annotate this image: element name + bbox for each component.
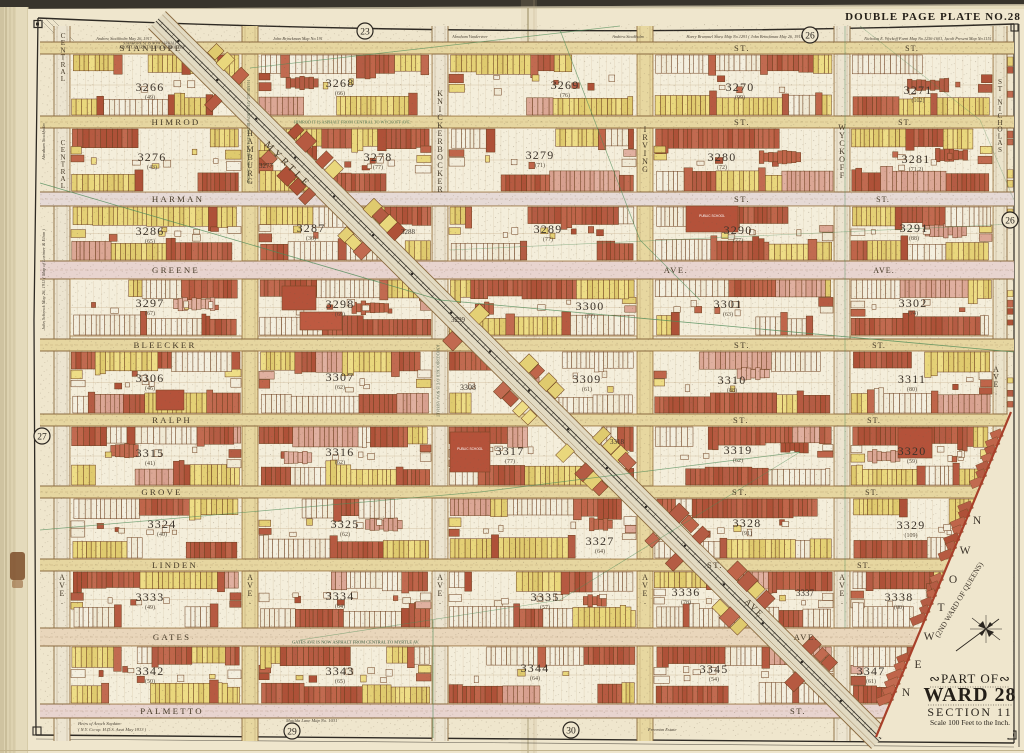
svg-text:(62): (62)	[733, 457, 743, 464]
svg-text:John Brinckman Map No.191: John Brinckman Map No.191	[273, 36, 323, 41]
svg-text:(65): (65)	[335, 678, 345, 685]
svg-text:.: .	[61, 597, 63, 606]
svg-text:3343: 3343	[326, 664, 355, 678]
svg-text:PALMETTO: PALMETTO	[140, 706, 204, 716]
svg-text:(41): (41)	[145, 460, 155, 467]
svg-text:GATES AVE IS NOW ASPHALT FROM: GATES AVE IS NOW ASPHALT FROM CENTRAL TO…	[292, 640, 419, 645]
svg-text:ST.: ST.	[734, 43, 750, 53]
svg-text:3336: 3336	[672, 585, 701, 599]
svg-text:(62): (62)	[335, 459, 345, 466]
svg-text:(69): (69)	[335, 311, 345, 318]
svg-text:3280: 3280	[708, 150, 737, 164]
svg-text:3318: 3318	[610, 438, 625, 446]
svg-text:(88): (88)	[727, 387, 737, 394]
svg-text:.: .	[995, 388, 997, 397]
svg-text:Freeman Estate: Freeman Estate	[647, 727, 676, 732]
svg-text:ST.: ST.	[734, 117, 750, 127]
svg-text:(88): (88)	[909, 235, 919, 242]
svg-text:3345: 3345	[700, 662, 729, 676]
svg-text:E: E	[914, 659, 921, 671]
svg-text:(54): (54)	[709, 676, 719, 683]
svg-text:ST.: ST.	[734, 340, 750, 350]
svg-text:(80): (80)	[907, 386, 917, 393]
svg-text:3291: 3291	[900, 221, 929, 235]
svg-text:26: 26	[805, 31, 815, 41]
svg-text:3335: 3335	[531, 590, 560, 604]
svg-text:3327: 3327	[586, 534, 615, 548]
svg-text:.: .	[439, 597, 441, 606]
svg-text:(102): (102)	[912, 97, 925, 104]
svg-text:WARD 28: WARD 28	[923, 684, 1016, 706]
svg-text:Matilda Lane Map No. 1031: Matilda Lane Map No. 1031	[285, 718, 337, 723]
svg-text:3290: 3290	[724, 223, 753, 237]
svg-text:N: N	[902, 687, 911, 699]
svg-text:(59): (59)	[907, 458, 917, 465]
svg-text:3288: 3288	[401, 228, 416, 236]
svg-text:(76): (76)	[560, 92, 570, 99]
svg-text:3342: 3342	[136, 664, 165, 678]
svg-text:T: T	[937, 602, 944, 614]
svg-text:3306: 3306	[136, 371, 165, 385]
svg-text:(64): (64)	[595, 548, 605, 555]
svg-text:3266: 3266	[136, 80, 165, 94]
svg-text:ST.: ST.	[898, 118, 912, 127]
svg-text:(67): (67)	[145, 310, 155, 317]
svg-text:(43): (43)	[147, 164, 157, 171]
svg-text:ST.: ST.	[732, 487, 748, 497]
svg-text:(80): (80)	[894, 604, 904, 611]
svg-text:3308: 3308	[460, 383, 476, 392]
svg-text:GROVE: GROVE	[141, 487, 182, 497]
svg-text:3277: 3277	[259, 162, 274, 170]
svg-text:SECTION 11: SECTION 11	[927, 705, 1012, 719]
svg-text:HIMROD IT IS ASPHALT FROM CEN: HIMROD IT IS ASPHALT FROM CENTRAL TO WYC…	[294, 120, 411, 125]
svg-text:(77): (77)	[733, 237, 743, 244]
svg-text:3289: 3289	[534, 222, 563, 236]
svg-text:ST.: ST.	[707, 560, 723, 570]
svg-text:.: .	[644, 597, 646, 606]
svg-text:BLEECKER: BLEECKER	[133, 340, 196, 350]
svg-text:(64): (64)	[530, 675, 540, 682]
svg-text:3298: 3298	[326, 297, 355, 311]
svg-text:Heirs of Anoch Suydam: Heirs of Anoch Suydam	[77, 721, 121, 726]
svg-text:(77): (77)	[373, 164, 383, 171]
svg-text:3301: 3301	[714, 297, 743, 311]
svg-text:RALPH: RALPH	[152, 415, 192, 425]
svg-text:Andrew Stockholm: Andrew Stockholm	[611, 34, 643, 39]
svg-text:S: S	[998, 146, 1002, 154]
svg-text:3315: 3315	[136, 446, 165, 460]
svg-text:N: N	[973, 515, 982, 527]
svg-text:ST.: ST.	[872, 341, 886, 350]
svg-text:30: 30	[566, 726, 576, 736]
svg-text:3324: 3324	[148, 517, 177, 531]
svg-text:3300: 3300	[576, 299, 605, 313]
svg-text:(77): (77)	[505, 458, 515, 465]
svg-text:3281: 3281	[902, 152, 931, 166]
svg-text:(64): (64)	[335, 603, 345, 610]
svg-text:AVE.: AVE.	[664, 265, 689, 275]
svg-text:F: F	[840, 171, 845, 180]
svg-text:3317: 3317	[496, 444, 525, 458]
svg-text:G: G	[642, 165, 648, 174]
svg-text:(36): (36)	[306, 235, 316, 242]
svg-text:(72): (72)	[717, 164, 727, 171]
svg-text:3309: 3309	[573, 372, 602, 386]
svg-text:GATES: GATES	[153, 632, 191, 642]
svg-text:Abraham Vanderveer: Abraham Vanderveer	[451, 34, 488, 39]
svg-text:.: .	[249, 597, 251, 606]
svg-text:(63): (63)	[723, 311, 733, 318]
svg-text:26: 26	[1005, 216, 1015, 226]
svg-text:3302: 3302	[899, 296, 928, 310]
svg-text:HAMBURG AVE IS NOW BEING REGUL: HAMBURG AVE IS NOW BEING REGULATED AND G…	[246, 80, 250, 184]
svg-text:ST.: ST.	[867, 416, 881, 425]
svg-text:AVE.: AVE.	[873, 266, 894, 275]
svg-text:(77): (77)	[543, 236, 553, 243]
svg-text:3337: 3337	[796, 588, 815, 598]
svg-text:(49): (49)	[145, 94, 155, 101]
svg-text:L: L	[61, 75, 65, 83]
svg-text:Scale 100 Feet to the Inch.: Scale 100 Feet to the Inch.	[930, 718, 1010, 727]
svg-text:3333: 3333	[136, 590, 165, 604]
svg-text:(109): (109)	[905, 532, 918, 539]
svg-text:(74): (74)	[908, 310, 918, 317]
svg-text:(61): (61)	[866, 678, 876, 685]
svg-text:KNICKERBOCKER AVE IS NOW ASPHA: KNICKERBOCKER AVE IS NOW ASPHALT	[436, 345, 440, 418]
svg-text:3316: 3316	[326, 445, 355, 459]
svg-text:(66): (66)	[335, 90, 345, 97]
svg-text:3287: 3287	[297, 221, 326, 235]
svg-text:O: O	[949, 574, 957, 586]
svg-text:(91): (91)	[742, 530, 752, 537]
svg-text:3325: 3325	[331, 517, 360, 531]
svg-text:3338: 3338	[885, 590, 914, 604]
svg-text:FROM CENTRAL TO KNICKERBOCKER: FROM CENTRAL TO KNICKERBOCKER	[118, 46, 185, 50]
svg-text:GREENE: GREENE	[152, 265, 200, 275]
svg-text:ST.: ST.	[734, 194, 750, 204]
svg-text:.: .	[841, 597, 843, 606]
svg-text:3269: 3269	[551, 78, 580, 92]
svg-text:3311: 3311	[898, 372, 926, 386]
svg-text:29: 29	[287, 727, 297, 737]
svg-text:3299: 3299	[451, 316, 466, 324]
svg-text:DOUBLE PAGE PLATE NO.28: DOUBLE PAGE PLATE NO.28	[845, 11, 1021, 23]
svg-text:(71): (71)	[535, 162, 545, 169]
svg-text:3279: 3279	[526, 148, 555, 162]
svg-text:HARMAN: HARMAN	[152, 194, 204, 204]
svg-text:(46): (46)	[145, 385, 155, 392]
svg-text:ST.: ST.	[876, 195, 890, 204]
svg-text:27: 27	[37, 432, 47, 442]
svg-text:3270: 3270	[726, 80, 755, 94]
svg-text:3347: 3347	[857, 664, 886, 678]
svg-text:W: W	[960, 545, 971, 557]
svg-text:(62): (62)	[340, 531, 350, 538]
svg-text:3278: 3278	[364, 150, 393, 164]
svg-text:(49): (49)	[145, 604, 155, 611]
svg-text:(57): (57)	[540, 604, 550, 611]
svg-text:3320: 3320	[898, 444, 927, 458]
svg-text:3286: 3286	[136, 224, 165, 238]
svg-text:23: 23	[360, 27, 370, 37]
svg-text:ST.: ST.	[790, 706, 806, 716]
svg-text:Abraham Stockholm: Abraham Stockholm	[41, 123, 46, 161]
svg-text:ST.: ST.	[865, 488, 879, 497]
svg-text:L: L	[61, 182, 65, 190]
svg-text:( N.Y. Co-op. H.D.S. Assn May: ( N.Y. Co-op. H.D.S. Assn May 1913 )	[78, 727, 147, 732]
svg-text:3329: 3329	[897, 518, 926, 532]
svg-text:(50): (50)	[145, 678, 155, 685]
svg-text:(61): (61)	[582, 386, 592, 393]
svg-text:(40): (40)	[157, 531, 167, 538]
svg-text:3307: 3307	[326, 370, 355, 384]
svg-text:3328: 3328	[733, 516, 762, 530]
svg-text:(65): (65)	[145, 238, 155, 245]
svg-text:3268: 3268	[326, 76, 355, 90]
svg-text:3319: 3319	[724, 443, 753, 457]
svg-text:(99): (99)	[735, 94, 745, 101]
svg-text:(77): (77)	[585, 313, 595, 320]
svg-text:ST.: ST.	[733, 415, 749, 425]
svg-text:3271: 3271	[904, 83, 933, 97]
svg-text:R: R	[437, 185, 443, 194]
svg-text:3310: 3310	[718, 373, 747, 387]
svg-text:(78): (78)	[681, 599, 691, 606]
svg-text:LINDEN: LINDEN	[152, 560, 198, 570]
svg-text:3344: 3344	[521, 661, 550, 675]
svg-text:AVE.: AVE.	[794, 632, 819, 642]
svg-text:3297: 3297	[136, 296, 165, 310]
svg-text:3334: 3334	[326, 589, 355, 603]
svg-text:ST.: ST.	[905, 44, 919, 53]
svg-text:(71.2): (71.2)	[909, 166, 924, 173]
svg-text:HIMROD: HIMROD	[152, 117, 201, 127]
svg-text:(62): (62)	[335, 384, 345, 391]
svg-text:ST.: ST.	[857, 561, 871, 570]
svg-text:3276: 3276	[138, 150, 167, 164]
